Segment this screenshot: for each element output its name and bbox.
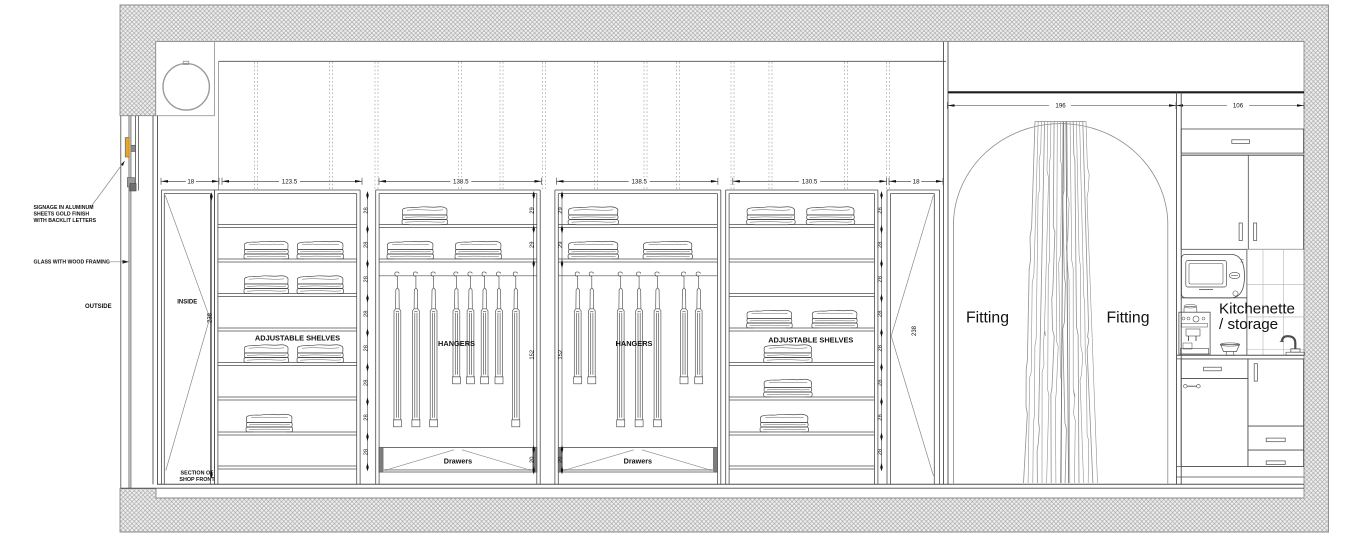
svg-text:28: 28 bbox=[364, 242, 370, 248]
svg-text:28: 28 bbox=[364, 380, 370, 386]
svg-text:28: 28 bbox=[878, 207, 884, 213]
svg-text:Kitchenette: Kitchenette bbox=[1219, 301, 1295, 318]
svg-text:29: 29 bbox=[558, 242, 564, 248]
svg-text:28: 28 bbox=[364, 311, 370, 317]
svg-text:106: 106 bbox=[1233, 103, 1244, 110]
svg-text:INSIDE: INSIDE bbox=[177, 300, 197, 306]
svg-text:28: 28 bbox=[878, 242, 884, 248]
svg-text:HANGERS: HANGERS bbox=[438, 339, 475, 348]
svg-text:29: 29 bbox=[530, 242, 536, 248]
svg-text:28: 28 bbox=[878, 414, 884, 420]
svg-text:/ storage: / storage bbox=[1219, 316, 1278, 333]
svg-text:SHEETS GOLD FINISH: SHEETS GOLD FINISH bbox=[34, 212, 90, 218]
svg-text:28: 28 bbox=[364, 345, 370, 351]
svg-text:SECTION OF: SECTION OF bbox=[181, 471, 215, 477]
svg-text:28: 28 bbox=[878, 449, 884, 455]
svg-text:130.5: 130.5 bbox=[802, 179, 818, 186]
svg-text:SIGNAGE IN ALUMINUM: SIGNAGE IN ALUMINUM bbox=[34, 205, 94, 211]
svg-text:28: 28 bbox=[364, 414, 370, 420]
svg-text:138.5: 138.5 bbox=[631, 179, 647, 186]
svg-text:28: 28 bbox=[878, 345, 884, 351]
svg-text:20: 20 bbox=[558, 457, 564, 463]
svg-text:196: 196 bbox=[1055, 103, 1066, 110]
svg-text:29: 29 bbox=[558, 207, 564, 213]
svg-text:ADJUSTABLE SHELVES: ADJUSTABLE SHELVES bbox=[768, 336, 853, 345]
svg-text:138.5: 138.5 bbox=[453, 179, 469, 186]
svg-text:123.5: 123.5 bbox=[282, 179, 298, 186]
svg-text:Fitting: Fitting bbox=[1106, 310, 1149, 327]
svg-text:ADJUSTABLE SHELVES: ADJUSTABLE SHELVES bbox=[255, 333, 340, 342]
svg-text:28: 28 bbox=[364, 449, 370, 455]
svg-text:18: 18 bbox=[913, 179, 920, 186]
svg-text:WITH BACKLIT LETTERS: WITH BACKLIT LETTERS bbox=[34, 218, 97, 224]
svg-text:Drawers: Drawers bbox=[444, 456, 472, 465]
svg-text:28: 28 bbox=[878, 380, 884, 386]
svg-text:Drawers: Drawers bbox=[624, 456, 652, 465]
svg-text:238: 238 bbox=[208, 312, 214, 323]
svg-text:Fitting: Fitting bbox=[966, 310, 1009, 327]
svg-text:28: 28 bbox=[878, 276, 884, 282]
svg-text:28: 28 bbox=[364, 207, 370, 213]
svg-text:29: 29 bbox=[530, 207, 536, 213]
svg-text:20: 20 bbox=[530, 457, 536, 463]
svg-text:28: 28 bbox=[878, 311, 884, 317]
svg-text:OUTSIDE: OUTSIDE bbox=[85, 304, 112, 310]
svg-text:152: 152 bbox=[530, 350, 536, 360]
svg-text:28: 28 bbox=[364, 276, 370, 282]
svg-text:18: 18 bbox=[187, 179, 194, 186]
svg-text:GLASS WITH WOOD FRAMING: GLASS WITH WOOD FRAMING bbox=[34, 260, 110, 266]
svg-text:HANGERS: HANGERS bbox=[616, 339, 653, 348]
svg-text:SHOP FRONT: SHOP FRONT bbox=[179, 477, 215, 483]
svg-text:152: 152 bbox=[558, 350, 564, 360]
svg-text:238: 238 bbox=[912, 325, 918, 336]
